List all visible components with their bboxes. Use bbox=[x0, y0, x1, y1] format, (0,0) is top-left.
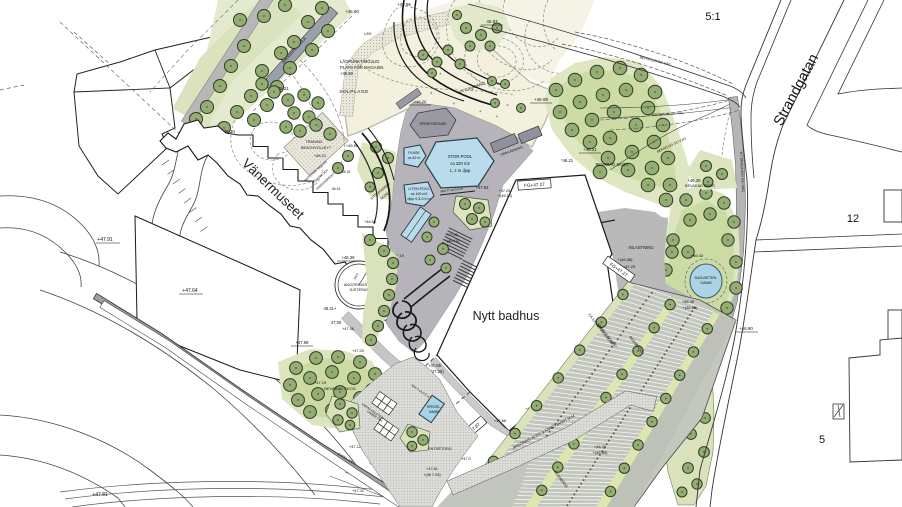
svg-text:+46.09: +46.09 bbox=[534, 97, 548, 102]
svg-text:+(46.66): +(46.66) bbox=[682, 305, 698, 310]
svg-text:5:1: 5:1 bbox=[705, 11, 720, 23]
svg-text:LITEN POOL: LITEN POOL bbox=[408, 187, 429, 191]
svg-text:+46.90: +46.90 bbox=[739, 326, 753, 331]
svg-text:+47.0: +47.0 bbox=[461, 457, 471, 461]
svg-text:+46.20: +46.20 bbox=[414, 99, 427, 104]
svg-text:+47.19: +47.19 bbox=[314, 380, 327, 385]
svg-text:LEK: LEK bbox=[364, 32, 372, 36]
svg-text:SPRAYGROUND: SPRAYGROUND bbox=[419, 122, 447, 126]
svg-text:+46.21: +46.21 bbox=[314, 153, 327, 158]
svg-text:Nytt badhus: Nytt badhus bbox=[473, 309, 540, 323]
svg-text:+47.85: +47.85 bbox=[428, 363, 442, 368]
svg-text:+46.45: +46.45 bbox=[682, 299, 695, 304]
svg-text:47,00: 47,00 bbox=[331, 320, 342, 325]
svg-text:ca 100 m2: ca 100 m2 bbox=[411, 192, 428, 196]
svg-text:+(46.10): +(46.10) bbox=[498, 194, 513, 198]
svg-text:+(46.85): +(46.85) bbox=[592, 450, 608, 455]
svg-text:+46.55: +46.55 bbox=[364, 220, 376, 224]
svg-text:45.97: 45.97 bbox=[486, 19, 498, 24]
svg-text:46.15: 46.15 bbox=[332, 187, 341, 191]
svg-text:+47.61: +47.61 bbox=[426, 467, 438, 471]
svg-text:+47.11: +47.11 bbox=[352, 488, 365, 493]
svg-text:+46.21: +46.21 bbox=[583, 147, 597, 152]
svg-text:SOLPLAGE: SOLPLAGE bbox=[339, 89, 369, 95]
svg-text:+46.43: +46.43 bbox=[691, 253, 704, 258]
svg-text:INLASTNING: INLASTNING bbox=[628, 245, 653, 250]
svg-text:+47.02: +47.02 bbox=[476, 185, 490, 190]
svg-text:+46.39: +46.39 bbox=[342, 255, 356, 260]
svg-text:46.15: 46.15 bbox=[342, 170, 351, 174]
svg-text:5: 5 bbox=[819, 434, 825, 446]
svg-text:+45.96: +45.96 bbox=[397, 2, 411, 7]
svg-text:+47.64: +47.64 bbox=[182, 288, 198, 294]
svg-text:+47.25-: +47.25- bbox=[499, 189, 513, 193]
svg-text:ca 42 m: ca 42 m bbox=[408, 156, 421, 160]
svg-text:+45.90: +45.90 bbox=[340, 71, 354, 76]
svg-text:BEACHVOLLEY?: BEACHVOLLEY? bbox=[301, 146, 331, 150]
svg-text:ca 320 m2: ca 320 m2 bbox=[450, 161, 470, 166]
svg-text:JUSTERAS: JUSTERAS bbox=[349, 288, 369, 292]
svg-text:+46.90: +46.90 bbox=[345, 9, 359, 14]
svg-text:TRÄNING: TRÄNING bbox=[305, 140, 322, 144]
svg-text:+46.30: +46.30 bbox=[688, 178, 702, 183]
svg-text:DAGVATTEN-: DAGVATTEN- bbox=[695, 276, 718, 280]
svg-text:+47.91: +47.91 bbox=[97, 237, 113, 243]
svg-text:+(46.58): +(46.58) bbox=[617, 257, 633, 262]
svg-text:48.21+: 48.21+ bbox=[324, 306, 337, 311]
svg-text:1, 2 m djup: 1, 2 m djup bbox=[450, 168, 471, 173]
svg-text:PLASK: PLASK bbox=[408, 151, 420, 155]
svg-text:12: 12 bbox=[847, 213, 859, 225]
svg-text:SPEGEL-: SPEGEL- bbox=[427, 405, 442, 409]
svg-text:DAMM: DAMM bbox=[701, 281, 712, 285]
svg-text:DAMM: DAMM bbox=[429, 410, 440, 414]
svg-text:+(46 7.26): +(46 7.26) bbox=[423, 473, 441, 477]
svg-text:*46.21: *46.21 bbox=[561, 158, 574, 163]
svg-text:LÅGPUNKT/MÖJLIG: LÅGPUNKT/MÖJLIG bbox=[340, 59, 379, 64]
svg-text:+47.38: +47.38 bbox=[342, 327, 354, 331]
svg-text:BEVARAD SKOG: BEVARAD SKOG bbox=[596, 162, 629, 167]
svg-text:djup 0,5-0,9 m: djup 0,5-0,9 m bbox=[408, 197, 431, 201]
svg-text:+47.81: +47.81 bbox=[92, 492, 108, 498]
svg-text:+47.98: +47.98 bbox=[296, 340, 310, 345]
svg-text:ENTRÉTORG: ENTRÉTORG bbox=[428, 446, 452, 451]
svg-text:BEVARAD SKOG: BEVARAD SKOG bbox=[685, 184, 715, 188]
svg-text:+47.00: +47.00 bbox=[352, 349, 364, 353]
svg-text:+46.70: +46.70 bbox=[594, 444, 607, 449]
svg-text:+47.66: +47.66 bbox=[494, 418, 507, 423]
svg-text:+46.50: +46.50 bbox=[346, 143, 359, 148]
svg-text:BEVARAD SKOG: BEVARAD SKOG bbox=[324, 386, 356, 391]
svg-text:STOR POOL: STOR POOL bbox=[448, 154, 473, 159]
